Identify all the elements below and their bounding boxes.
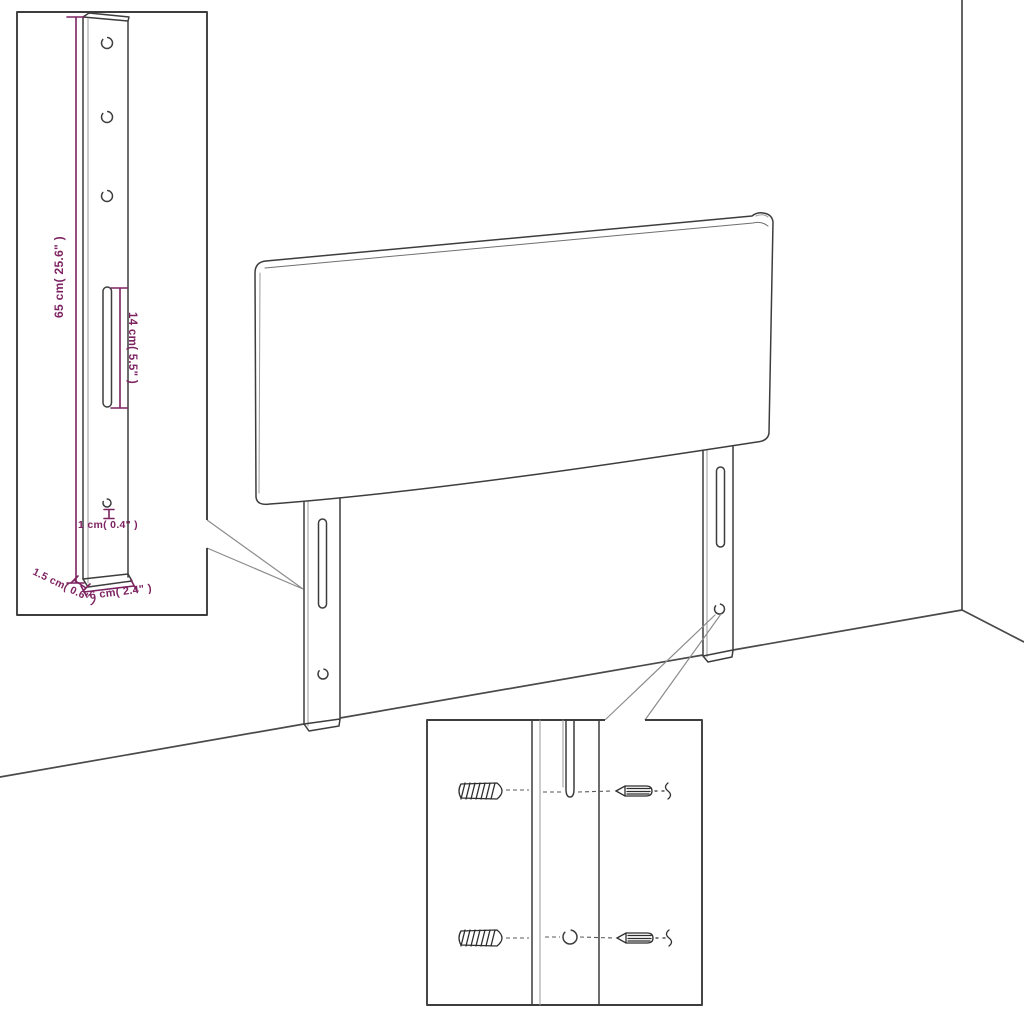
label-leg-height: 65 cm( 25.6" ) — [52, 236, 66, 318]
label-slot-length: 14 cm( 5.5" ) — [126, 312, 138, 384]
mounting-detail-inset — [427, 614, 721, 1005]
leg-inset-callout-lines — [207, 520, 303, 589]
left-leg — [304, 476, 340, 731]
right-leg — [703, 427, 733, 662]
headboard-assembly-diagram: 65 cm( 25.6" ) 14 cm( 5.5" ) 1 cm( 0.4" … — [0, 0, 1024, 1024]
panel-outline — [255, 213, 773, 505]
assembly-diagram-page: 65 cm( 25.6" ) 14 cm( 5.5" ) 1 cm( 0.4" … — [0, 0, 1024, 1024]
label-hole-diameter: 1 cm( 0.4" ) — [78, 519, 138, 531]
floor-line-right — [962, 610, 1024, 642]
left-leg-face — [304, 476, 340, 724]
headboard-panel — [255, 213, 773, 505]
mounting-inset-box — [427, 720, 702, 1005]
